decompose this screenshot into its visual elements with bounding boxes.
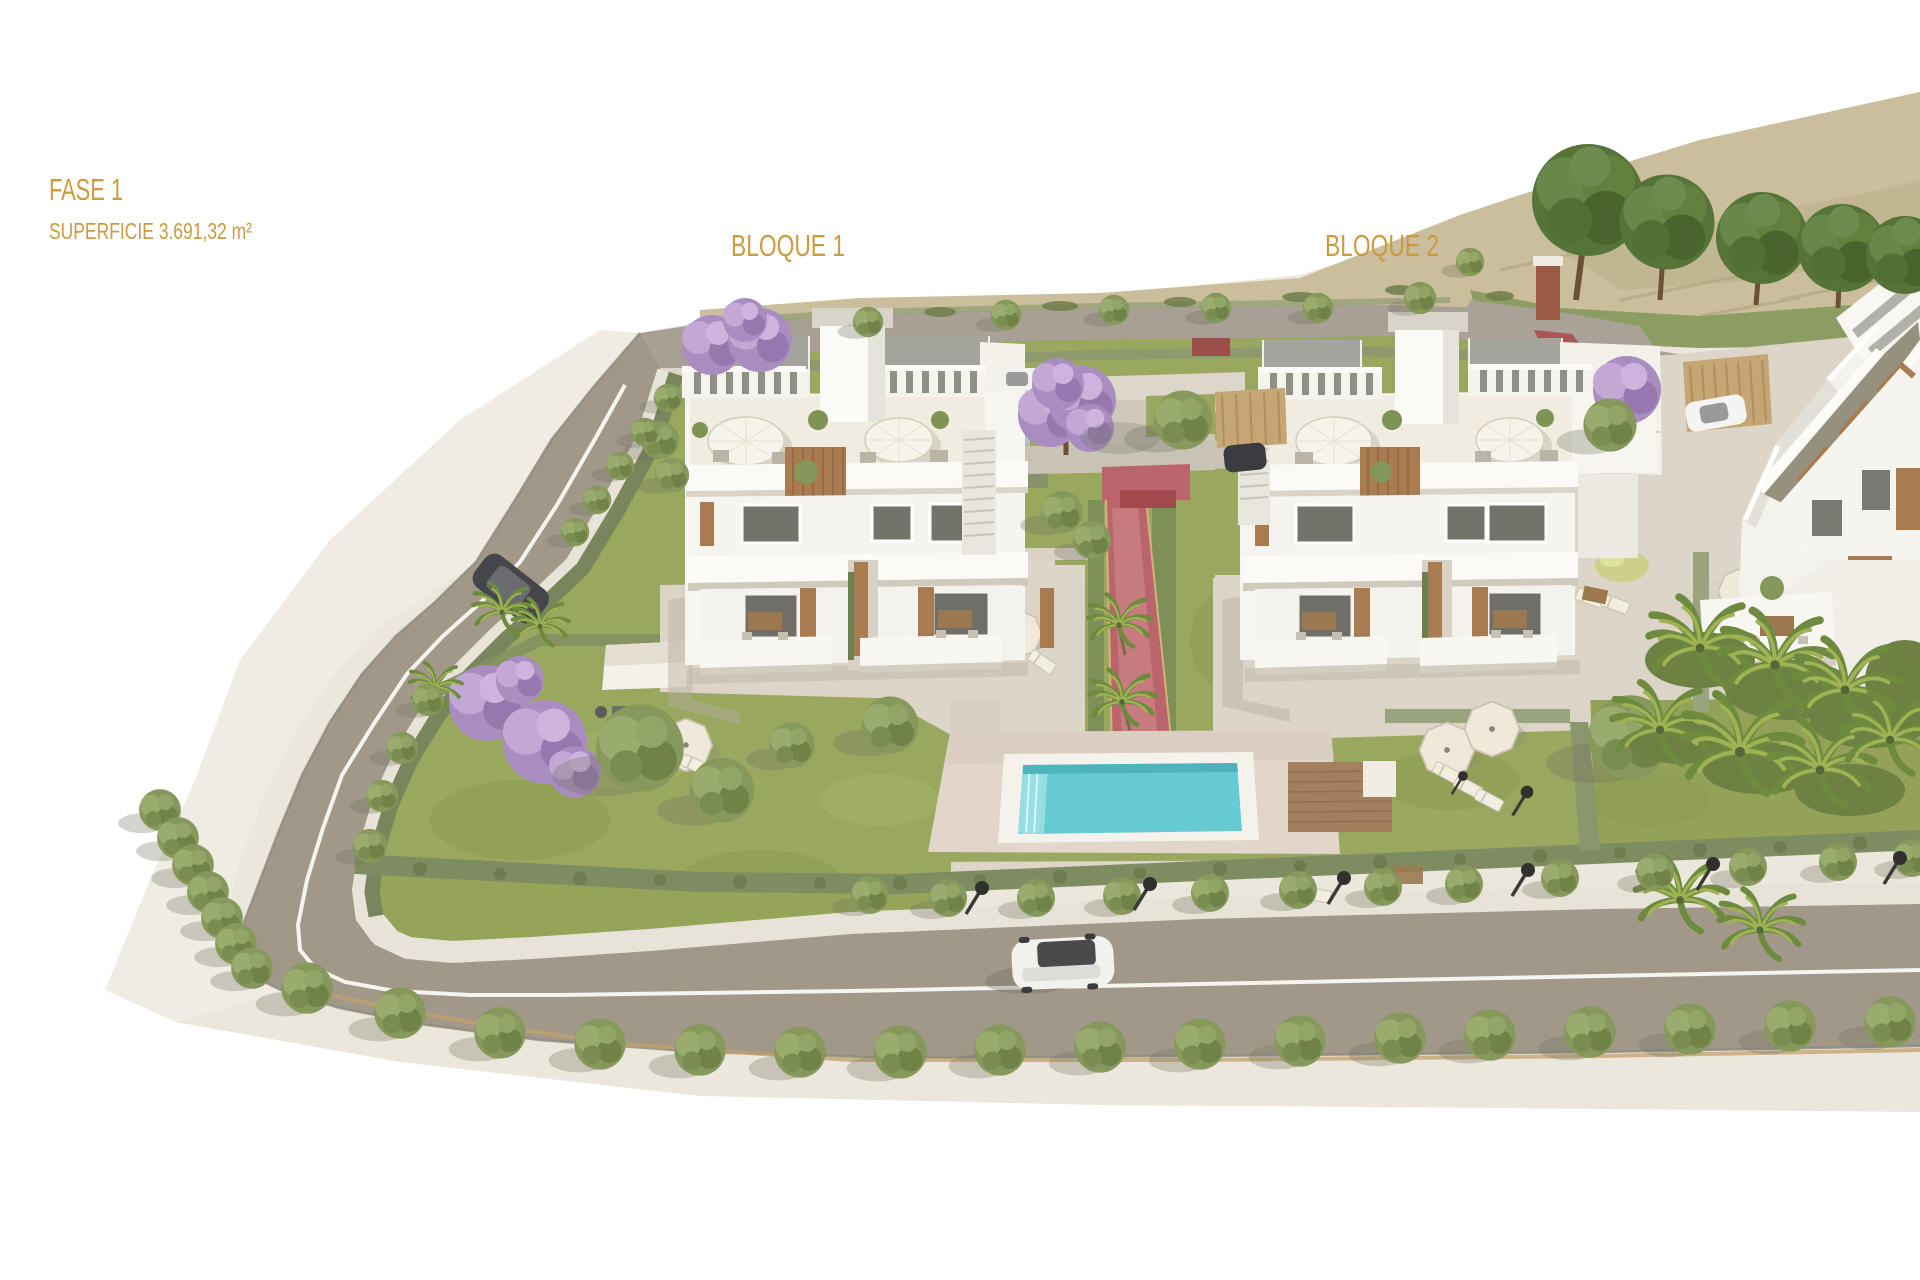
svg-text:FASE 1: FASE 1 <box>49 172 123 207</box>
svg-text:SUPERFICIE 3.691,32 m²: SUPERFICIE 3.691,32 m² <box>49 218 252 244</box>
svg-text:BLOQUE 2: BLOQUE 2 <box>1325 228 1439 263</box>
svg-text:BLOQUE 1: BLOQUE 1 <box>731 228 845 263</box>
